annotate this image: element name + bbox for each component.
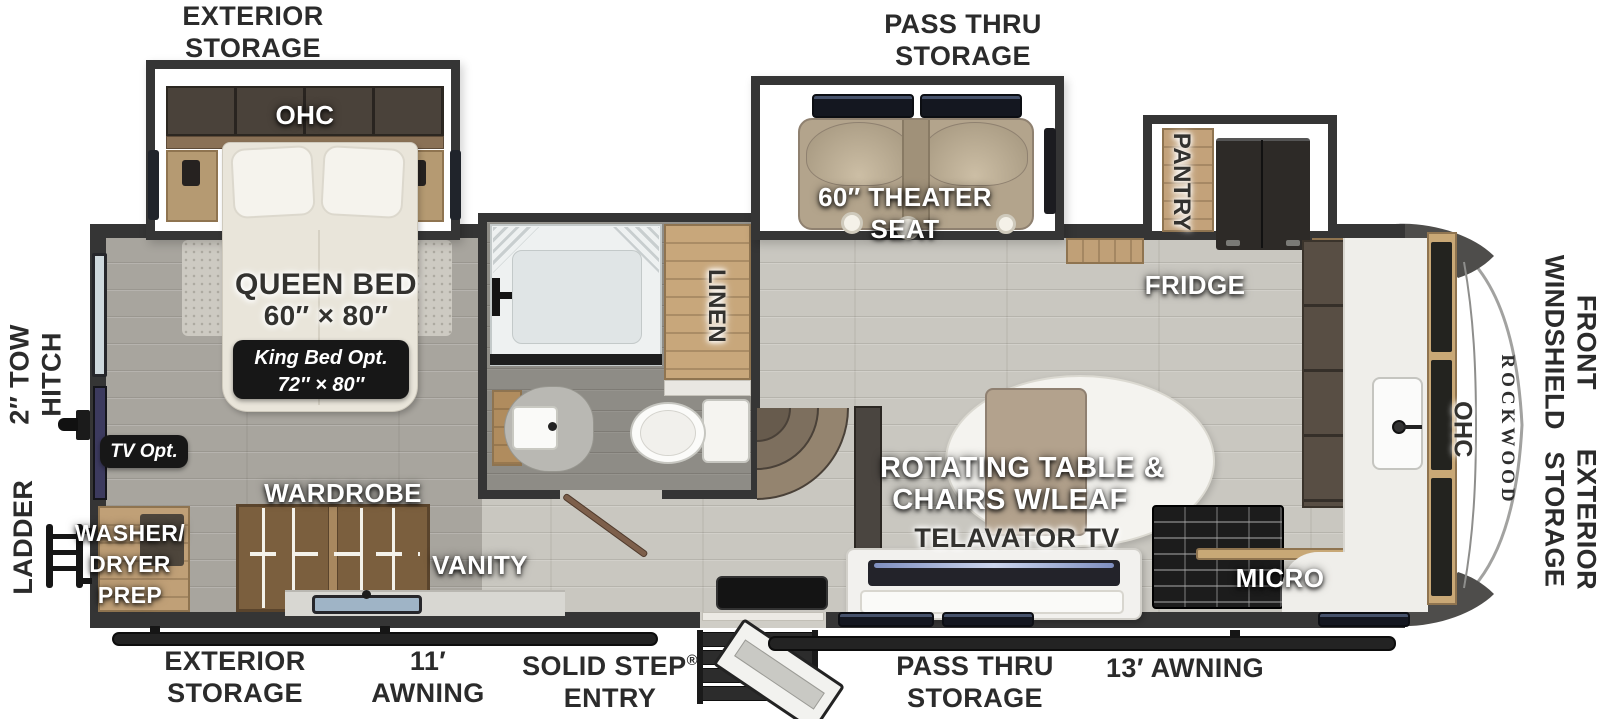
king-bed-option-badge: King Bed Opt. 72″ × 80″ [233, 340, 409, 399]
fridge-handle-right [1286, 240, 1300, 246]
front-windshield-label: FRONT WINDSHIELD [1538, 227, 1600, 457]
theater-side-window [1044, 128, 1056, 214]
awning-bracket-1 [150, 626, 160, 634]
theater-back-right [922, 122, 1028, 186]
theater-seat-label-1: 60″ THEATER [805, 182, 1005, 213]
wardrobe-label: WARDROBE [243, 478, 443, 509]
registered-mark: ® [687, 653, 698, 669]
linen-ledge [664, 380, 751, 396]
awning-bracket-2 [380, 626, 390, 634]
awning-11-label: 11′ AWNING [328, 645, 528, 710]
pillow-right [320, 145, 406, 219]
ladder-label: LADDER [7, 467, 39, 607]
front-ohc-panel-3 [1431, 478, 1452, 596]
washer-dryer-label: WASHER/ DRYER PREP [60, 518, 200, 611]
telavator-tv-label: TELAVATOR TV [912, 523, 1122, 554]
slide-window-left [148, 150, 159, 220]
king-bed-option-line2: 72″ × 80″ [233, 372, 409, 399]
theater-seat-label-2: SEAT [805, 214, 1005, 245]
vanity-faucet [362, 590, 371, 599]
micro-label: MICRO [1180, 563, 1380, 594]
bottom-pass-thru-label: PASS THRU STORAGE [875, 650, 1075, 715]
vanity-label: VANITY [380, 550, 580, 581]
solid-step-entry-label: SOLID STEP® ENTRY [510, 650, 710, 715]
counter-top-left [1066, 238, 1144, 264]
fridge-handle-left [1226, 240, 1240, 246]
awning-bracket-3 [1230, 630, 1240, 638]
queen-bed-size: 60″ × 80″ [218, 300, 434, 332]
bottom-window-2 [942, 612, 1034, 627]
rotating-table-label-2: CHAIRS W/LEAF [880, 484, 1140, 517]
bedroom-steps [757, 408, 853, 520]
telavator-tv-glow [874, 563, 1114, 568]
kitchen-ohc-label: OHC [1448, 392, 1477, 468]
fridge-door-split [1261, 140, 1263, 248]
awning-13-label: 13′ AWNING [1085, 652, 1285, 684]
toilet-tank [702, 399, 750, 463]
bedroom-ohc-label: OHC [245, 100, 365, 131]
awning-rail-11ft [112, 632, 658, 646]
fridge [1216, 138, 1310, 250]
tv-option-badge: TV Opt. [100, 435, 188, 468]
kitchen-faucet-stem [1404, 425, 1422, 429]
top-exterior-storage-label: EXTERIOR STORAGE [153, 0, 353, 65]
top-pass-thru-label: PASS THRU STORAGE [863, 8, 1063, 73]
floorplan: OHC QUEEN BED 60″ × 80″ King Bed Opt. 72… [0, 0, 1600, 719]
toilet-seat [640, 410, 696, 456]
queen-bed-label: QUEEN BED [218, 268, 434, 302]
tow-hitch-label: 2″ TOW HITCH [4, 289, 69, 459]
awning-rail-13ft [768, 636, 1396, 651]
shower-door-track [490, 354, 662, 365]
rear-window [92, 253, 107, 377]
pantry-label: PANTRY [1167, 122, 1195, 242]
pillow-left [230, 145, 316, 219]
linen-label: LINEN [702, 251, 730, 361]
theater-back-left [806, 122, 912, 186]
bottom-window-3 [1318, 612, 1410, 627]
theater-window-right [920, 94, 1022, 118]
island-front-lip [860, 590, 1124, 614]
rotating-table-label-1: ROTATING TABLE & [880, 452, 1140, 485]
lamp-left [182, 160, 200, 186]
right-exterior-storage-label: EXTERIOR STORAGE [1538, 439, 1600, 599]
fridge-label: FRIDGE [1095, 270, 1295, 301]
shower-head-arm [492, 292, 512, 299]
bath-faucet [548, 422, 557, 431]
entry-threshold [702, 612, 824, 621]
entry-mat [716, 576, 828, 610]
shower-pan [512, 250, 642, 344]
rockwood-logo: ROCKWOOD [1496, 354, 1518, 506]
bottom-exterior-storage-label: EXTERIOR STORAGE [135, 645, 335, 710]
tv-option-label: TV Opt. [110, 441, 178, 462]
front-ohc-panel-1 [1431, 242, 1452, 352]
king-bed-option-line1: King Bed Opt. [233, 345, 409, 372]
tow-hitch-pin [76, 410, 90, 440]
slide-window-right [450, 150, 461, 220]
theater-window-left [812, 94, 914, 118]
kitchen-cabinet-band [1302, 240, 1348, 508]
wardrobe-rod-1 [262, 508, 265, 608]
bottom-window-1 [838, 612, 934, 627]
